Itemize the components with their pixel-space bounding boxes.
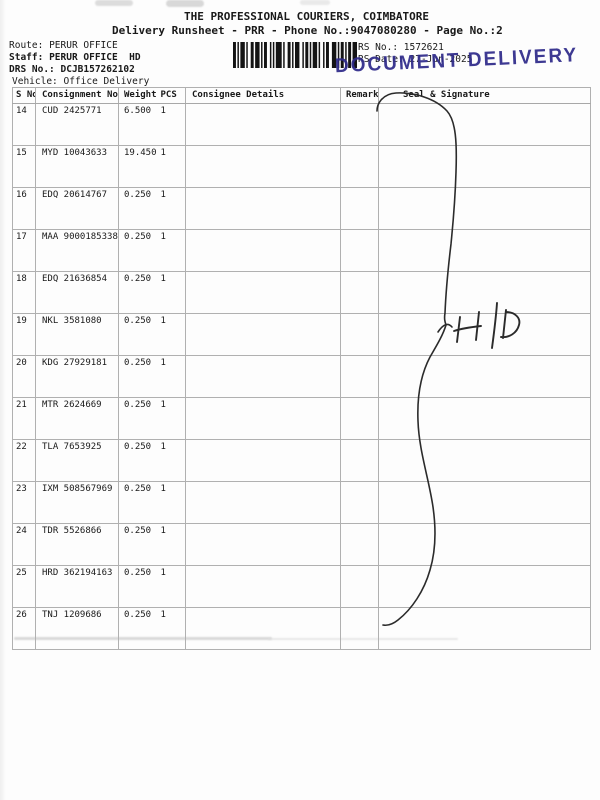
drs-no-line: DRS No.: DCJB157262102 bbox=[9, 64, 135, 75]
cell-consignee-details bbox=[186, 356, 341, 398]
cell-seal-signature bbox=[379, 608, 591, 650]
table-row: 20KDG 279291810.2501 bbox=[13, 356, 591, 398]
cell-remarks bbox=[341, 314, 379, 356]
cell-s-no: 22 bbox=[13, 440, 36, 482]
cell-s-no: 21 bbox=[13, 398, 36, 440]
cell-consignment-no: MYD 10043633 bbox=[36, 146, 119, 188]
cell-weight: 0.250 bbox=[119, 398, 159, 440]
cell-consignee-details bbox=[186, 524, 341, 566]
table-row: 16EDQ 206147670.2501 bbox=[13, 188, 591, 230]
staff-line: Staff: PERUR OFFICE HD bbox=[9, 52, 141, 63]
table-row: 23IXM 5085679690.2501 bbox=[13, 482, 591, 524]
cell-consignment-no: HRD 362194163 bbox=[36, 566, 119, 608]
cell-weight: 19.450 bbox=[119, 146, 159, 188]
cell-pcs: 1 bbox=[159, 608, 186, 650]
rs-no-label: RS No.: bbox=[358, 42, 398, 53]
cell-consignee-details bbox=[186, 188, 341, 230]
cell-remarks bbox=[341, 272, 379, 314]
cell-seal-signature bbox=[379, 398, 591, 440]
document-subtitle: Delivery Runsheet - PRR - Phone No.:9047… bbox=[112, 24, 503, 37]
cell-s-no: 14 bbox=[13, 104, 36, 146]
cell-remarks bbox=[341, 608, 379, 650]
cell-s-no: 23 bbox=[13, 482, 36, 524]
route-value: PERUR OFFICE bbox=[49, 40, 118, 51]
cell-consignment-no: EDQ 21636854 bbox=[36, 272, 119, 314]
cell-consignee-details bbox=[186, 146, 341, 188]
cell-remarks bbox=[341, 356, 379, 398]
column-header-remarks: Remarks bbox=[341, 88, 379, 104]
cell-weight: 0.250 bbox=[119, 440, 159, 482]
cell-pcs: 1 bbox=[159, 272, 186, 314]
staff-value: PERUR OFFICE HD bbox=[49, 52, 141, 63]
cell-consignee-details bbox=[186, 230, 341, 272]
cell-s-no: 19 bbox=[13, 314, 36, 356]
cell-seal-signature bbox=[379, 356, 591, 398]
cell-pcs: 1 bbox=[159, 314, 186, 356]
cell-remarks bbox=[341, 440, 379, 482]
cell-consignment-no: KDG 27929181 bbox=[36, 356, 119, 398]
cell-consignee-details bbox=[186, 272, 341, 314]
cell-s-no: 17 bbox=[13, 230, 36, 272]
cell-consignee-details bbox=[186, 440, 341, 482]
cell-consignment-no: TLA 7653925 bbox=[36, 440, 119, 482]
column-header-consignment-no: Consignment No bbox=[36, 88, 119, 104]
runsheet-table-header: S NoConsignment NoWeightPCSConsignee Det… bbox=[13, 88, 591, 104]
cell-remarks bbox=[341, 230, 379, 272]
cell-consignment-no: TNJ 1209686 bbox=[36, 608, 119, 650]
cell-seal-signature bbox=[379, 440, 591, 482]
cell-s-no: 15 bbox=[13, 146, 36, 188]
cell-pcs: 1 bbox=[159, 356, 186, 398]
column-header-s-no: S No bbox=[13, 88, 36, 104]
table-row: 18EDQ 216368540.2501 bbox=[13, 272, 591, 314]
table-row: 24TDR 55268660.2501 bbox=[13, 524, 591, 566]
cell-remarks bbox=[341, 146, 379, 188]
cell-weight: 0.250 bbox=[119, 524, 159, 566]
cell-consignee-details bbox=[186, 608, 341, 650]
cell-s-no: 18 bbox=[13, 272, 36, 314]
table-row: 26TNJ 12096860.2501 bbox=[13, 608, 591, 650]
route-line: Route: PERUR OFFICE bbox=[9, 40, 118, 51]
cell-seal-signature bbox=[379, 482, 591, 524]
cell-pcs: 1 bbox=[159, 146, 186, 188]
cell-weight: 0.250 bbox=[119, 188, 159, 230]
column-header-weight: Weight bbox=[119, 88, 159, 104]
cell-weight: 6.500 bbox=[119, 104, 159, 146]
vehicle-value: Office Delivery bbox=[64, 76, 150, 87]
cell-consignment-no: NKL 3581080 bbox=[36, 314, 119, 356]
cell-seal-signature bbox=[379, 566, 591, 608]
cell-remarks bbox=[341, 104, 379, 146]
cell-remarks bbox=[341, 188, 379, 230]
document-title: THE PROFESSIONAL COURIERS, COIMBATORE bbox=[184, 10, 429, 23]
cell-s-no: 25 bbox=[13, 566, 36, 608]
cell-remarks bbox=[341, 566, 379, 608]
table-row: 19NKL 35810800.2501 bbox=[13, 314, 591, 356]
table-row: 14CUD 24257716.5001 bbox=[13, 104, 591, 146]
cell-consignment-no: CUD 2425771 bbox=[36, 104, 119, 146]
cell-weight: 0.250 bbox=[119, 566, 159, 608]
cell-consignment-no: TDR 5526866 bbox=[36, 524, 119, 566]
cell-pcs: 1 bbox=[159, 188, 186, 230]
vehicle-line: Vehicle: Office Delivery bbox=[12, 76, 149, 87]
scan-edge-shadow bbox=[0, 0, 6, 800]
cell-consignment-no: IXM 508567969 bbox=[36, 482, 119, 524]
cell-pcs: 1 bbox=[159, 482, 186, 524]
cell-consignment-no: EDQ 20614767 bbox=[36, 188, 119, 230]
vehicle-label: Vehicle: bbox=[12, 76, 58, 87]
cell-weight: 0.250 bbox=[119, 482, 159, 524]
table-row: 22TLA 76539250.2501 bbox=[13, 440, 591, 482]
column-header-seal-signature: Seal & Signature bbox=[379, 88, 591, 104]
cell-pcs: 1 bbox=[159, 398, 186, 440]
route-label: Route: bbox=[9, 40, 43, 51]
header-row: S NoConsignment NoWeightPCSConsignee Det… bbox=[13, 88, 591, 104]
cell-seal-signature bbox=[379, 272, 591, 314]
cell-seal-signature bbox=[379, 524, 591, 566]
cell-consignee-details bbox=[186, 566, 341, 608]
cell-pcs: 1 bbox=[159, 524, 186, 566]
table-row: 21MTR 26246690.2501 bbox=[13, 398, 591, 440]
cell-seal-signature bbox=[379, 314, 591, 356]
cell-s-no: 24 bbox=[13, 524, 36, 566]
cell-weight: 0.250 bbox=[119, 272, 159, 314]
scan-artifact bbox=[95, 0, 133, 6]
cell-remarks bbox=[341, 524, 379, 566]
cell-weight: 0.250 bbox=[119, 356, 159, 398]
scanned-delivery-runsheet: { "page": { "title": "THE PROFESSIONAL C… bbox=[0, 0, 600, 800]
cell-consignee-details bbox=[186, 104, 341, 146]
column-header-consignee-details: Consignee Details bbox=[186, 88, 341, 104]
cell-seal-signature bbox=[379, 230, 591, 272]
cell-consignee-details bbox=[186, 482, 341, 524]
cell-remarks bbox=[341, 482, 379, 524]
cell-remarks bbox=[341, 398, 379, 440]
cell-seal-signature bbox=[379, 146, 591, 188]
table-row: 15MYD 1004363319.4501 bbox=[13, 146, 591, 188]
cell-weight: 0.250 bbox=[119, 608, 159, 650]
scan-artifact bbox=[166, 0, 204, 7]
cell-pcs: 1 bbox=[159, 230, 186, 272]
cell-consignment-no: MAA 9000185338 bbox=[36, 230, 119, 272]
scan-artifact bbox=[300, 0, 330, 5]
drs-no-value: DCJB157262102 bbox=[61, 64, 135, 75]
runsheet-table-body: 14CUD 24257716.500115MYD 1004363319.4501… bbox=[13, 104, 591, 650]
cell-consignee-details bbox=[186, 398, 341, 440]
staff-label: Staff: bbox=[9, 52, 43, 63]
cell-seal-signature bbox=[379, 188, 591, 230]
cell-seal-signature bbox=[379, 104, 591, 146]
runsheet-table: S NoConsignment NoWeightPCSConsignee Det… bbox=[12, 87, 591, 650]
cell-weight: 0.250 bbox=[119, 230, 159, 272]
cell-s-no: 26 bbox=[13, 608, 36, 650]
column-header-pcs: PCS bbox=[159, 88, 186, 104]
cell-pcs: 1 bbox=[159, 566, 186, 608]
cell-pcs: 1 bbox=[159, 104, 186, 146]
table-row: 17MAA 90001853380.2501 bbox=[13, 230, 591, 272]
cell-weight: 0.250 bbox=[119, 314, 159, 356]
cell-s-no: 20 bbox=[13, 356, 36, 398]
cell-consignee-details bbox=[186, 314, 341, 356]
cell-s-no: 16 bbox=[13, 188, 36, 230]
cell-consignment-no: MTR 2624669 bbox=[36, 398, 119, 440]
drs-no-label: DRS No.: bbox=[9, 64, 55, 75]
table-row: 25HRD 3621941630.2501 bbox=[13, 566, 591, 608]
cell-pcs: 1 bbox=[159, 440, 186, 482]
